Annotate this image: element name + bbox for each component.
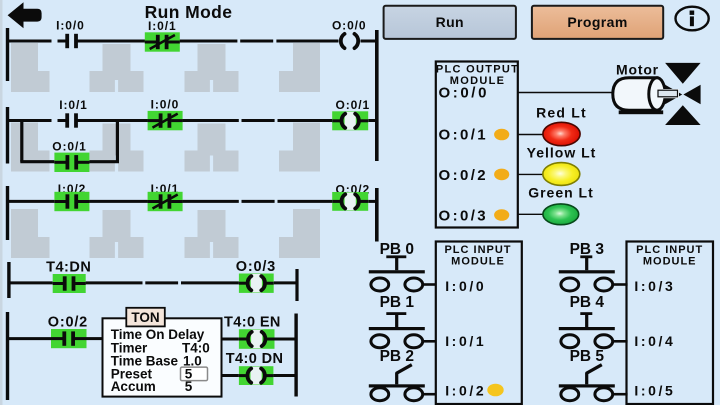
svg-text:PLC INPUT: PLC INPUT	[444, 244, 511, 256]
svg-text:O:0/2: O:0/2	[48, 315, 88, 331]
svg-text:I:0/0: I:0/0	[56, 18, 85, 32]
svg-text:PLC OUTPUT: PLC OUTPUT	[436, 64, 519, 76]
svg-text:PB 2: PB 2	[380, 348, 414, 365]
svg-text:5: 5	[185, 366, 193, 381]
svg-text:TON: TON	[131, 310, 159, 325]
svg-text:O:0/0: O:0/0	[332, 18, 367, 32]
svg-text:O:0/1: O:0/1	[336, 98, 371, 112]
svg-text:PB 1: PB 1	[380, 294, 415, 311]
svg-text:PB 0: PB 0	[380, 241, 414, 258]
svg-text:O:0/3: O:0/3	[439, 208, 489, 225]
svg-text:MODULE: MODULE	[451, 255, 505, 267]
svg-text:Accum: Accum	[111, 379, 156, 394]
svg-text:I:0/0: I:0/0	[151, 97, 180, 111]
svg-text:I:0/4: I:0/4	[634, 333, 675, 349]
svg-text:PLC INPUT: PLC INPUT	[636, 244, 703, 256]
svg-text:PB 4: PB 4	[570, 294, 605, 311]
svg-text:I:0/3: I:0/3	[634, 278, 675, 294]
svg-text:Motor: Motor	[616, 62, 659, 78]
svg-text:I:0/2: I:0/2	[445, 382, 486, 398]
svg-text:O:0/0: O:0/0	[439, 84, 490, 101]
svg-text:Program: Program	[567, 14, 627, 30]
svg-text:O:0/1: O:0/1	[52, 140, 87, 154]
svg-text:I:0/5: I:0/5	[634, 382, 675, 398]
svg-text:I:0/1: I:0/1	[148, 19, 177, 33]
svg-text:Red Lt: Red Lt	[536, 105, 587, 121]
svg-text:Time On Delay: Time On Delay	[111, 327, 205, 342]
svg-text:PB 5: PB 5	[570, 348, 605, 365]
svg-text:I:0/1: I:0/1	[59, 98, 88, 112]
svg-text:I:0/0: I:0/0	[445, 278, 486, 294]
svg-text:T4:0 EN: T4:0 EN	[224, 315, 281, 331]
svg-text:Yellow Lt: Yellow Lt	[527, 144, 597, 160]
svg-text:T4:0 DN: T4:0 DN	[226, 351, 284, 367]
svg-text:T4:DN: T4:DN	[46, 260, 91, 276]
svg-text:5: 5	[185, 379, 193, 394]
svg-text:Run: Run	[436, 14, 464, 30]
svg-text:MODULE: MODULE	[643, 255, 697, 267]
svg-text:O:0/1: O:0/1	[439, 127, 489, 144]
svg-text:I:0/1: I:0/1	[445, 333, 486, 349]
svg-text:Green Lt: Green Lt	[528, 184, 594, 200]
svg-text:O:0/2: O:0/2	[439, 167, 489, 184]
svg-text:O:0/3: O:0/3	[236, 259, 276, 275]
svg-text:PB 3: PB 3	[570, 241, 605, 258]
